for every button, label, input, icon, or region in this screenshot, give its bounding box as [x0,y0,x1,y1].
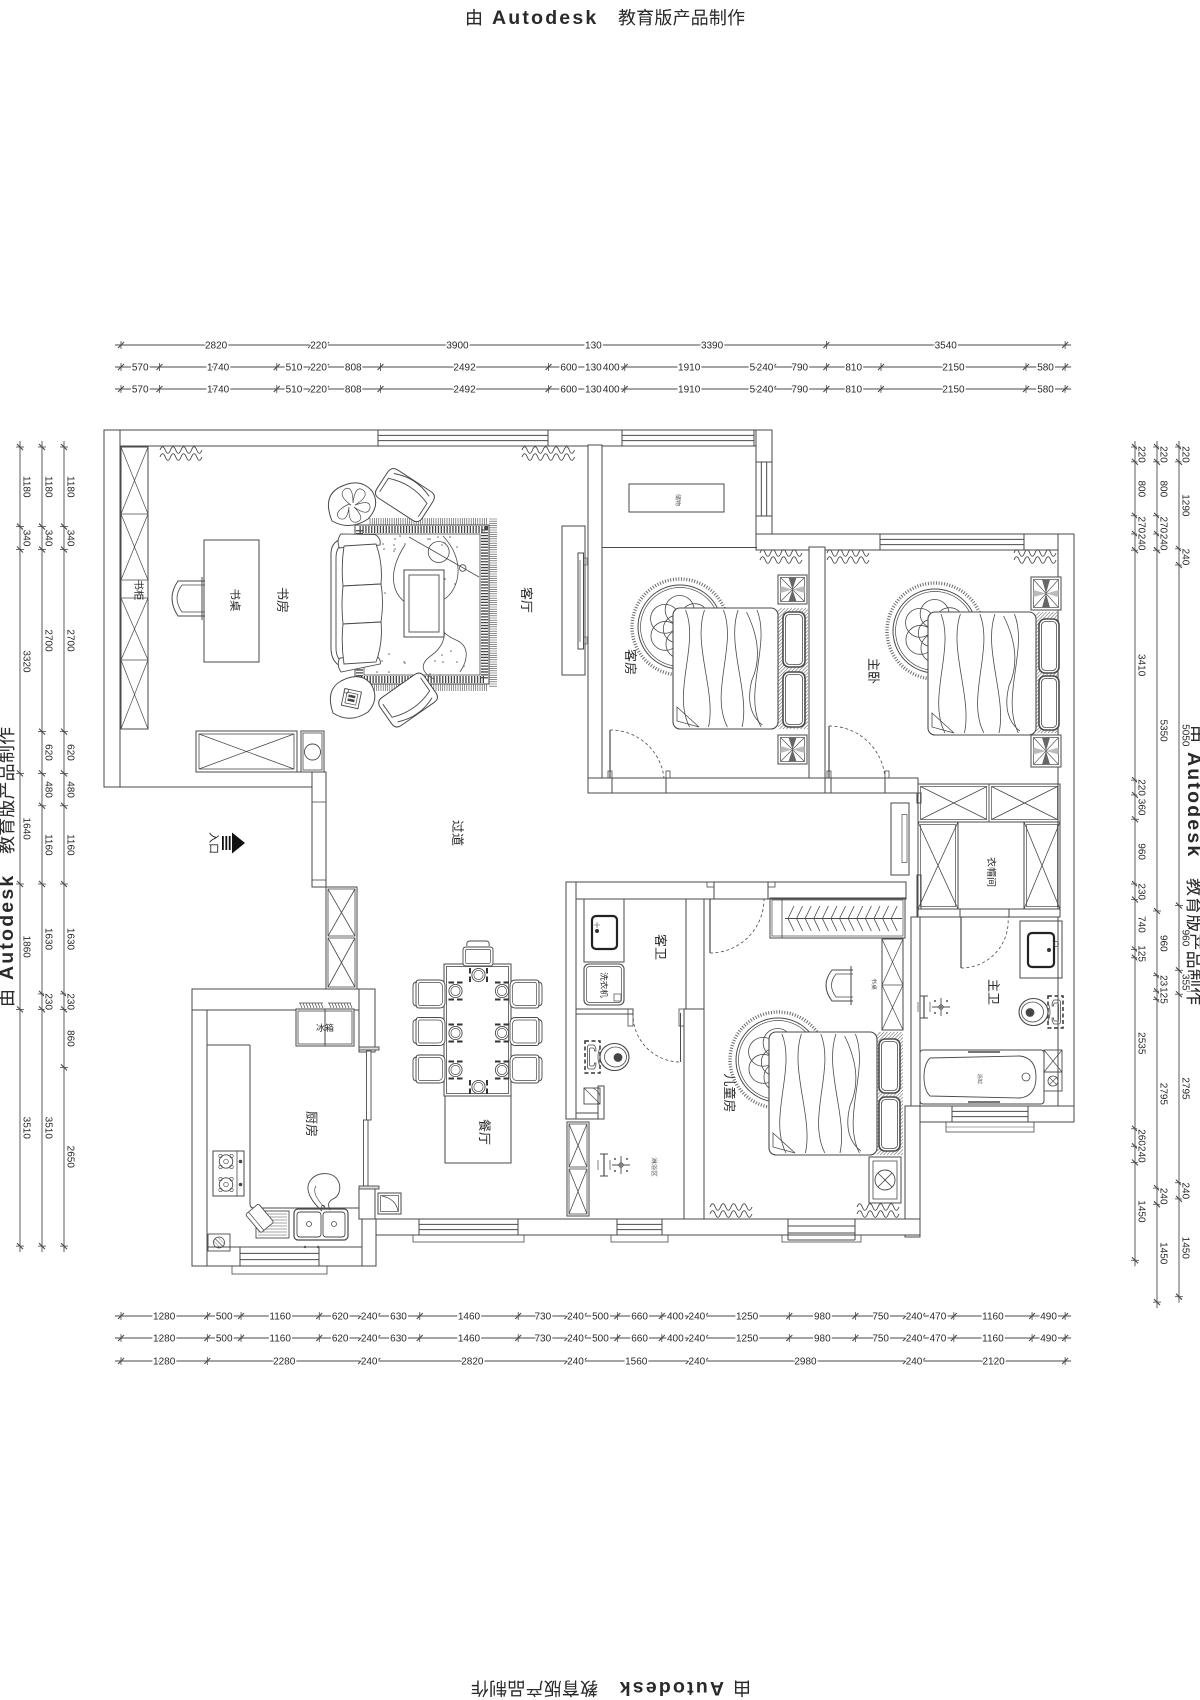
svg-text:240: 240 [361,1357,378,1368]
svg-text:355: 355 [1180,974,1191,991]
svg-text:2700: 2700 [65,629,76,652]
svg-text:1460: 1460 [458,1312,481,1323]
svg-text:240: 240 [906,1334,923,1345]
svg-text:1290: 1290 [1180,494,1191,517]
svg-text:620: 620 [332,1312,349,1323]
svg-text:2150: 2150 [942,363,965,374]
svg-text:Autodesk: Autodesk [0,874,18,980]
svg-text:240: 240 [1158,1188,1169,1205]
svg-text:3900: 3900 [446,341,469,352]
svg-text:340: 340 [43,530,54,547]
svg-text:1160: 1160 [982,1334,1004,1345]
svg-text:1740: 1740 [207,385,230,396]
svg-text:220: 220 [1158,446,1169,463]
svg-text:125: 125 [1136,945,1147,962]
svg-text:810: 810 [845,363,862,374]
svg-text:220: 220 [1180,446,1191,463]
svg-text:240: 240 [567,1334,584,1345]
svg-text:130: 130 [585,363,602,374]
svg-text:2492: 2492 [453,363,476,374]
svg-text:1910: 1910 [678,363,701,374]
svg-text:810: 810 [845,385,862,396]
svg-text:240: 240 [361,1334,378,1345]
svg-text:2120: 2120 [982,1357,1005,1368]
svg-text:240: 240 [689,1312,706,1323]
svg-text:1450: 1450 [1180,1237,1191,1260]
svg-text:1450: 1450 [1158,1242,1169,1265]
svg-text:730: 730 [534,1312,551,1323]
svg-text:500: 500 [216,1334,233,1345]
svg-text:500: 500 [592,1312,609,1323]
svg-text:980: 980 [814,1312,831,1323]
svg-text:1630: 1630 [65,928,76,951]
svg-text:2492: 2492 [453,385,476,396]
svg-text:620: 620 [65,744,76,761]
svg-text:660: 660 [631,1334,648,1345]
svg-text:5350: 5350 [1158,719,1169,742]
svg-text:240: 240 [757,363,774,374]
svg-text:808: 808 [345,363,362,374]
svg-text:570: 570 [132,385,149,396]
svg-text:1250: 1250 [736,1312,759,1323]
svg-text:480: 480 [65,781,76,798]
svg-text:1160: 1160 [269,1334,291,1345]
svg-text:3510: 3510 [21,1117,32,1140]
svg-text:510: 510 [286,385,303,396]
svg-text:1460: 1460 [458,1334,481,1345]
svg-text:1280: 1280 [153,1357,176,1368]
svg-text:230: 230 [1136,883,1147,900]
svg-text:490: 490 [1040,1334,1057,1345]
svg-text:800: 800 [1158,480,1169,497]
svg-text:510: 510 [286,363,303,374]
svg-text:340: 340 [65,530,76,547]
svg-text:240: 240 [689,1334,706,1345]
svg-text:580: 580 [1037,385,1054,396]
svg-text:5050: 5050 [1180,724,1191,747]
svg-text:1250: 1250 [736,1334,759,1345]
svg-text:740: 740 [1136,916,1147,933]
svg-text:130: 130 [585,385,602,396]
svg-text:2650: 2650 [65,1146,76,1169]
svg-text:1160: 1160 [982,1312,1004,1323]
svg-text:240: 240 [567,1312,584,1323]
svg-text:270: 270 [1158,517,1169,534]
svg-text:Autodesk: Autodesk [492,7,598,29]
svg-text:220: 220 [1136,779,1147,796]
svg-text:600: 600 [560,363,577,374]
svg-text:240: 240 [906,1312,923,1323]
svg-text:1640: 1640 [21,818,32,841]
svg-text:240: 240 [1136,1146,1147,1163]
svg-text:240: 240 [757,385,774,396]
svg-text:1160: 1160 [43,834,54,856]
svg-text:240: 240 [361,1312,378,1323]
svg-text:1740: 1740 [207,363,230,374]
svg-text:240: 240 [906,1357,923,1368]
svg-text:1160: 1160 [65,834,76,856]
svg-text:3510: 3510 [43,1117,54,1140]
svg-text:790: 790 [791,363,808,374]
svg-text:240: 240 [1158,534,1169,551]
svg-text:750: 750 [872,1334,889,1345]
svg-text:220: 220 [310,341,327,352]
svg-text:2795: 2795 [1180,1077,1191,1100]
svg-text:2820: 2820 [205,341,228,352]
svg-text:400: 400 [603,363,620,374]
svg-text:980: 980 [814,1334,831,1345]
svg-text:2280: 2280 [273,1357,296,1368]
svg-text:860: 860 [65,1030,76,1047]
svg-text:750: 750 [872,1312,889,1323]
svg-text:660: 660 [631,1312,648,1323]
svg-text:130: 130 [585,341,602,352]
svg-text:240: 240 [1180,1182,1191,1199]
svg-text:240: 240 [689,1357,706,1368]
svg-text:960: 960 [1180,930,1191,947]
svg-text:1280: 1280 [153,1334,176,1345]
svg-text:600: 600 [560,385,577,396]
svg-text:3410: 3410 [1136,654,1147,677]
svg-text:470: 470 [930,1334,947,1345]
svg-text:1160: 1160 [269,1312,291,1323]
svg-text:360: 360 [1136,799,1147,816]
svg-text:2535: 2535 [1136,1032,1147,1055]
svg-text:1910: 1910 [678,385,701,396]
svg-text:Autodesk: Autodesk [1183,752,1200,858]
svg-text:960: 960 [1158,935,1169,952]
svg-text:220: 220 [1136,446,1147,463]
svg-text:808: 808 [345,385,362,396]
svg-text:480: 480 [43,781,54,798]
svg-text:580: 580 [1037,363,1054,374]
svg-text:500: 500 [216,1312,233,1323]
svg-text:1280: 1280 [153,1312,176,1323]
svg-text:1450: 1450 [1136,1200,1147,1223]
svg-text:630: 630 [390,1334,407,1345]
svg-text:230: 230 [65,993,76,1010]
svg-text:220: 220 [310,385,327,396]
svg-text:730: 730 [534,1334,551,1345]
svg-text:2820: 2820 [461,1357,484,1368]
svg-text:1180: 1180 [43,476,54,498]
svg-text:2980: 2980 [794,1357,817,1368]
svg-text:125: 125 [1158,987,1169,1004]
svg-text:3390: 3390 [701,341,724,352]
svg-text:1560: 1560 [625,1357,648,1368]
svg-text:620: 620 [43,744,54,761]
svg-text:400: 400 [603,385,620,396]
svg-text:400: 400 [667,1312,684,1323]
svg-text:240: 240 [1136,534,1147,551]
svg-text:620: 620 [332,1334,349,1345]
svg-text:1630: 1630 [43,928,54,951]
svg-text:230: 230 [43,993,54,1010]
svg-text:570: 570 [132,363,149,374]
svg-text:260: 260 [1136,1129,1147,1146]
svg-text:790: 790 [791,385,808,396]
svg-text:490: 490 [1040,1312,1057,1323]
svg-text:1860: 1860 [21,936,32,959]
svg-text:220: 220 [310,363,327,374]
svg-text:800: 800 [1136,480,1147,497]
svg-text:400: 400 [667,1334,684,1345]
svg-text:Autodesk: Autodesk [618,1677,724,1699]
svg-text:2150: 2150 [942,385,965,396]
svg-text:470: 470 [930,1312,947,1323]
svg-text:1180: 1180 [65,476,76,498]
svg-text:2795: 2795 [1158,1083,1169,1106]
svg-text:340: 340 [21,530,32,547]
svg-text:630: 630 [390,1312,407,1323]
svg-text:3540: 3540 [935,341,958,352]
svg-text:3320: 3320 [21,650,32,673]
svg-text:240: 240 [567,1357,584,1368]
svg-text:1180: 1180 [21,476,32,498]
svg-text:2700: 2700 [43,629,54,652]
svg-text:500: 500 [592,1334,609,1345]
svg-text:960: 960 [1136,843,1147,860]
svg-text:270: 270 [1136,517,1147,534]
svg-text:240: 240 [1180,549,1191,566]
